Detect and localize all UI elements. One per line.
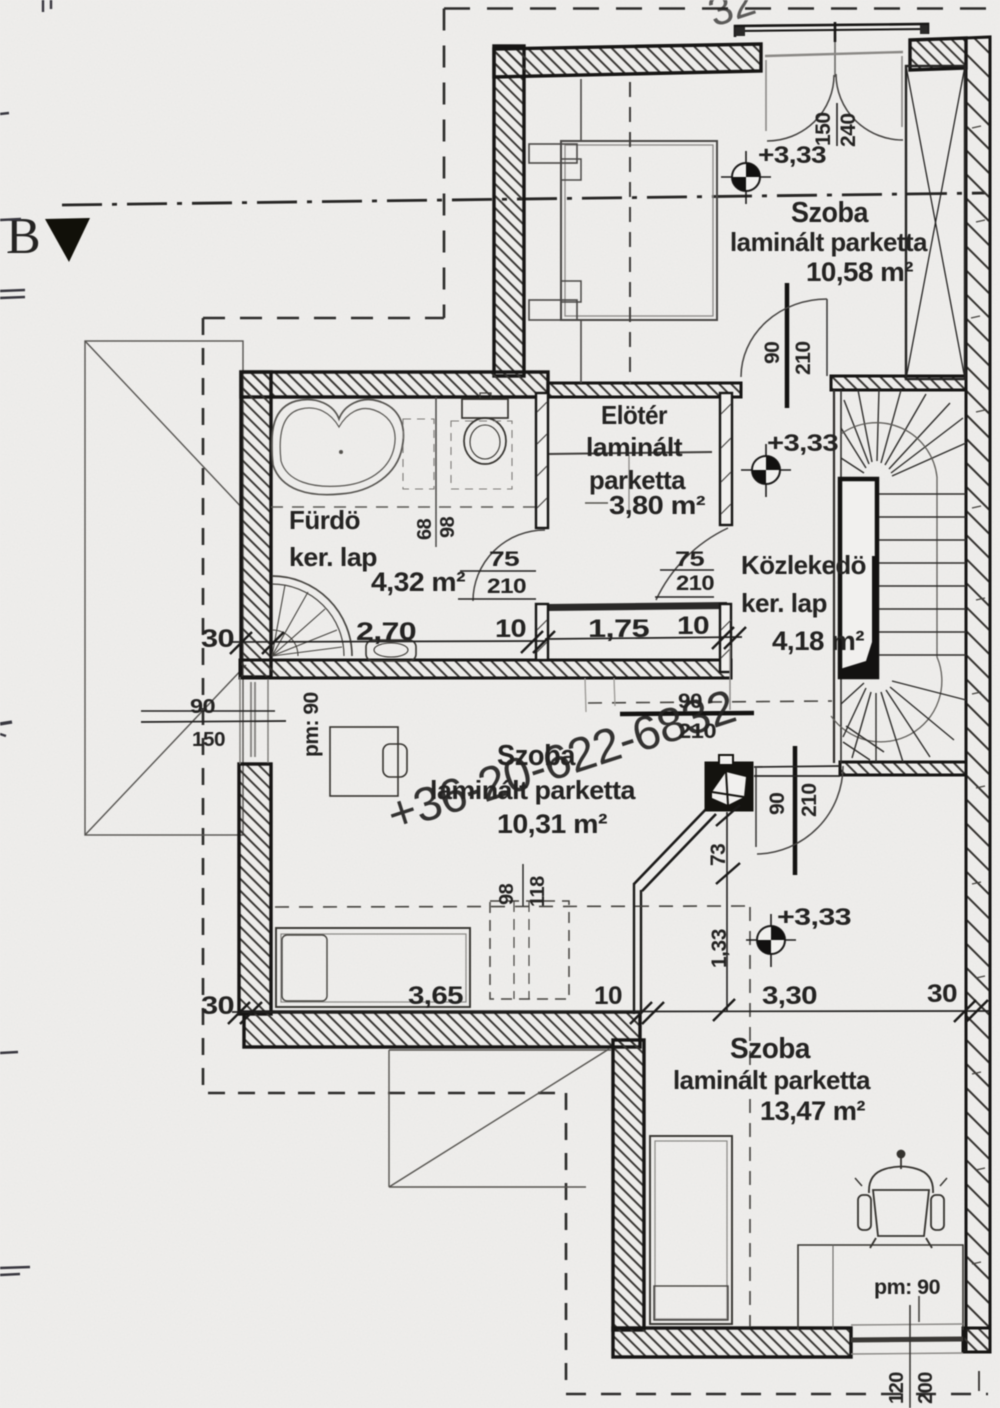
svg-text:90: 90 [761,342,784,364]
svg-text:118: 118 [527,876,549,907]
svg-text:pm: 90: pm: 90 [874,1276,940,1299]
svg-text:1,75: 1,75 [588,615,650,643]
svg-text:68: 68 [414,518,436,540]
svg-text:laminált parketta: laminált parketta [673,1065,871,1095]
svg-text:Közlekedö: Közlekedö [741,550,866,580]
svg-text:90: 90 [190,696,215,718]
svg-text:13,47 m²: 13,47 m² [760,1096,866,1126]
svg-text:90: 90 [766,793,789,815]
svg-text:3,65: 3,65 [408,982,464,1010]
svg-text:73: 73 [707,844,730,866]
svg-text:10: 10 [495,615,526,643]
svg-text:ker. lap: ker. lap [289,542,377,572]
svg-text:10: 10 [594,982,622,1010]
svg-text:210: 210 [487,575,526,598]
svg-text:210: 210 [792,341,815,375]
svg-text:30: 30 [927,980,957,1008]
svg-text:98: 98 [437,516,459,538]
svg-text:3,80 m²: 3,80 m² [609,490,706,520]
svg-text:+3,33: +3,33 [767,430,838,457]
svg-text:Szoba: Szoba [791,197,869,229]
svg-text:210: 210 [676,572,714,595]
svg-text:+3,33: +3,33 [758,142,826,169]
svg-text:98: 98 [496,883,518,905]
svg-text:ker. lap: ker. lap [741,588,827,618]
svg-text:75: 75 [675,548,705,571]
svg-text:2,70: 2,70 [356,618,416,646]
svg-text:200: 200 [915,1372,937,1404]
svg-text:laminált: laminált [586,432,683,462]
svg-text:75: 75 [489,548,520,571]
svg-text:120: 120 [886,1372,908,1404]
svg-text:30: 30 [201,992,234,1020]
svg-text:240: 240 [837,113,860,147]
svg-text:Elötér: Elötér [601,400,667,430]
svg-text:10: 10 [677,612,709,640]
svg-text:Fürdö: Fürdö [289,505,360,535]
svg-text:30: 30 [201,625,234,653]
svg-text:10,31 m²: 10,31 m² [497,809,608,839]
svg-text:B: B [6,208,40,265]
svg-text:210: 210 [798,783,821,817]
svg-text:4,32 m²: 4,32 m² [371,567,466,597]
svg-text:4,18 m²: 4,18 m² [772,626,865,656]
svg-text:Szoba: Szoba [730,1033,811,1065]
svg-text:10,58 m²: 10,58 m² [806,257,914,287]
svg-text:1,33: 1,33 [708,929,731,968]
svg-text:150: 150 [812,112,835,146]
svg-text:laminált parketta: laminált parketta [730,227,928,257]
svg-text:+3,33: +3,33 [777,904,851,931]
svg-text:150: 150 [192,729,225,751]
svg-text:3,30: 3,30 [762,982,817,1010]
svg-text:pm: 90: pm: 90 [300,692,323,757]
